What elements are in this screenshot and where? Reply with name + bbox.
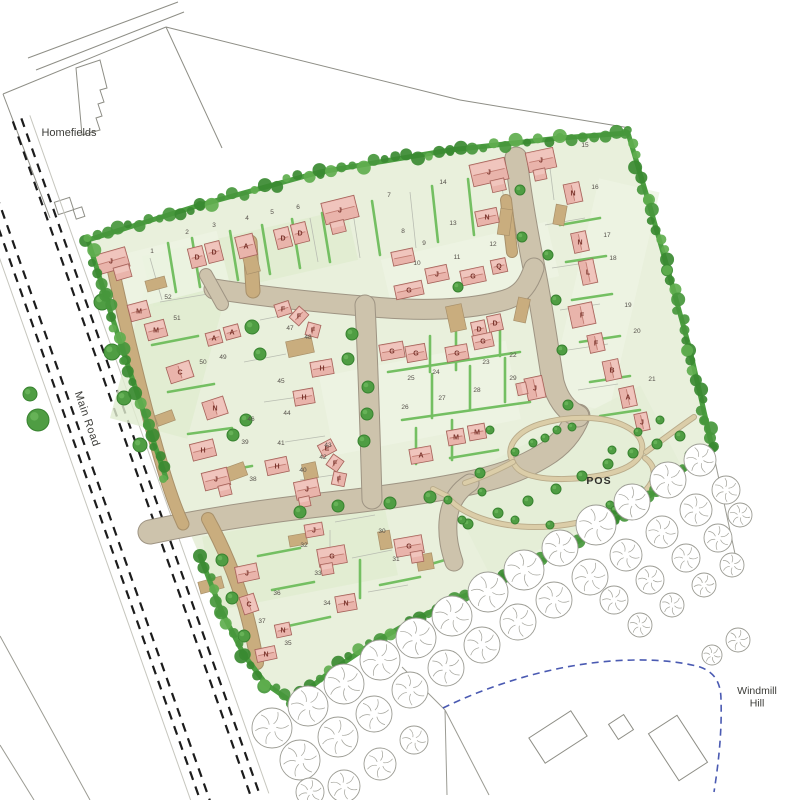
hedge-shrub — [637, 185, 647, 195]
tree — [453, 282, 463, 292]
tree-highlight — [479, 489, 482, 492]
hedge-shrub — [187, 207, 195, 215]
plot-number: 6 — [296, 204, 300, 211]
hedge-shrub — [247, 661, 255, 669]
tree — [511, 516, 519, 524]
tree-highlight — [629, 449, 633, 453]
tree-highlight — [135, 440, 140, 445]
plot-number: 9 — [422, 240, 426, 247]
plot-number: 23 — [482, 359, 490, 366]
site-plan-svg: JDDADDJJJNNGJGQDDNLFFBAJGGGGJMMAHHFFFEFF… — [0, 0, 800, 800]
tree-highlight — [609, 447, 612, 450]
woodland-tree-outline — [428, 650, 464, 686]
tree-highlight — [552, 485, 556, 489]
hedge-shrub — [194, 198, 206, 210]
plot-number: 3 — [212, 222, 216, 229]
windmill-hill — [443, 660, 721, 792]
parcel-boundary-line — [460, 100, 630, 128]
house-type-letter: F — [580, 312, 585, 319]
plot-number: 16 — [591, 184, 599, 191]
tree — [226, 592, 238, 604]
house-type-letter: M — [136, 308, 142, 315]
house-type-letter: A — [418, 452, 423, 459]
house-type-letter: G — [406, 287, 412, 294]
hedge-shrub — [134, 220, 146, 232]
tree-highlight — [512, 517, 515, 520]
hedge-shrub — [143, 214, 153, 224]
parcel-boundary-line — [36, 12, 184, 70]
house-type-letter: J — [640, 419, 644, 426]
tree — [424, 491, 436, 503]
tree-highlight — [30, 412, 38, 420]
plot-number: 50 — [199, 359, 207, 366]
woodland-tree-outline — [628, 613, 652, 637]
woodland-tree-outline — [704, 524, 732, 552]
house-type-letter: G — [389, 348, 395, 355]
hedge-shrub — [694, 383, 708, 397]
hedge-shrub — [234, 649, 248, 663]
tree — [515, 185, 525, 195]
hedge-shrub — [696, 406, 706, 416]
tree-highlight — [247, 322, 252, 327]
plot-number: 28 — [473, 387, 481, 394]
plot-number: 39 — [241, 439, 249, 446]
house-type-letter: J — [487, 169, 491, 176]
hedge-shrub — [344, 652, 352, 660]
hedge-shrub — [239, 191, 249, 201]
tree — [656, 416, 664, 424]
hedge-shrub — [544, 137, 554, 147]
tree — [523, 496, 533, 506]
tree-highlight — [554, 427, 557, 430]
house-type-letter: F — [333, 460, 338, 467]
plot-number: 15 — [581, 142, 589, 149]
plot-number: 34 — [323, 600, 331, 607]
plot-number: 43 — [324, 442, 332, 449]
plot-number: 46 — [247, 416, 255, 423]
woodland-tree-outline — [646, 516, 678, 548]
field-boundary-line — [0, 745, 34, 800]
tree — [332, 500, 344, 512]
house-type-letter: F — [337, 476, 342, 483]
hedge-shrub — [400, 148, 412, 160]
woodland-tree-outline — [684, 444, 716, 476]
house-type-letter: N — [280, 627, 285, 634]
woodland-tree-outline — [660, 593, 684, 617]
tree-highlight — [228, 594, 233, 599]
hedge-shrub — [390, 151, 400, 161]
plot-number: 33 — [314, 570, 322, 577]
road-surface — [365, 305, 372, 499]
hedge-shrub — [578, 132, 588, 142]
tree-highlight — [296, 508, 301, 513]
plot-number: 8 — [401, 228, 405, 235]
tree-highlight — [229, 431, 234, 436]
hedge-shrub — [325, 165, 337, 177]
plot-number: 20 — [633, 328, 641, 335]
woodland-tree-outline — [650, 462, 686, 498]
tree-highlight — [242, 416, 247, 421]
hedge-shrub — [208, 573, 216, 581]
plot-number: 35 — [284, 640, 292, 647]
tree-highlight — [459, 517, 462, 520]
hedge-shrub — [651, 225, 661, 235]
plot-number: 4 — [245, 215, 249, 222]
house-type-letter: M — [153, 327, 159, 334]
homefields-building-outline — [76, 60, 107, 135]
hedge-shrub — [111, 221, 125, 235]
hedge-shrub — [656, 234, 666, 244]
woodland-tree-outline — [536, 582, 572, 618]
tree — [563, 400, 573, 410]
hedge-shrub — [523, 139, 531, 147]
hedge-shrub — [316, 675, 324, 683]
house-type-letter: G — [406, 543, 412, 550]
woodland-tree-outline — [692, 573, 716, 597]
tree-highlight — [518, 233, 522, 237]
hedge-shrub — [159, 475, 167, 483]
house-type-letter: D — [297, 230, 302, 237]
woodland-tree-outline — [328, 770, 360, 800]
tree-highlight — [348, 330, 353, 335]
hedge-shrub — [106, 312, 116, 322]
tree-highlight — [653, 440, 657, 444]
hedge-shrub — [635, 172, 647, 184]
house-type-letter: Q — [496, 263, 502, 270]
tree — [384, 497, 396, 509]
plot-number: 49 — [219, 354, 227, 361]
hedge-shrub — [119, 357, 127, 365]
tree-highlight — [530, 440, 533, 443]
tree — [493, 508, 503, 518]
plot-number: 37 — [258, 618, 266, 625]
house-type-letter: D — [194, 254, 199, 261]
woodland-tree-outline — [356, 696, 392, 732]
woodland-tree-outline — [504, 550, 544, 590]
tree-highlight — [334, 502, 339, 507]
tree — [133, 438, 147, 452]
house-type-letter: L — [586, 269, 591, 276]
house-type-letter: D — [476, 326, 481, 333]
plot-number: 12 — [489, 241, 497, 248]
hedge-shrub — [553, 129, 567, 143]
hedge-shrub — [633, 151, 641, 159]
tree-highlight — [445, 497, 448, 500]
hedge-shrub — [156, 451, 166, 461]
house-type-letter: N — [212, 405, 217, 412]
hedge-shrub — [685, 355, 695, 365]
house-type-letter: J — [109, 258, 113, 265]
hedge-shrub — [479, 144, 487, 152]
plot-number: 27 — [438, 395, 446, 402]
hedge-shrub — [235, 640, 243, 648]
house-type-letter: C — [246, 601, 251, 608]
woodland-tree-outline — [280, 740, 320, 780]
tree-highlight — [542, 435, 545, 438]
tree — [358, 435, 370, 447]
woodland-tree-outline — [572, 559, 608, 595]
woodland-tree-outline — [318, 717, 358, 757]
tree — [23, 387, 37, 401]
hedge-shrub — [671, 292, 685, 306]
plot-number: 13 — [449, 220, 457, 227]
main-road-label: Main Road — [72, 390, 102, 448]
plot-number: 32 — [300, 542, 308, 549]
tree — [529, 439, 537, 447]
woodland-tree-outline — [636, 566, 664, 594]
tree — [603, 459, 613, 469]
hedge-shrub — [589, 132, 599, 142]
hedge-shrub — [258, 679, 270, 691]
hedge-shrub — [156, 215, 164, 223]
hedge-shrub — [96, 278, 108, 290]
hedge-shrub — [158, 461, 170, 473]
hedge-shrub — [114, 332, 126, 344]
plot-number: 52 — [164, 294, 172, 301]
plot-number: 36 — [273, 590, 281, 597]
windmill-hill-label: Windmill — [737, 685, 777, 697]
hedge-shrub — [251, 186, 259, 194]
plot-number: 2 — [185, 229, 189, 236]
plot-number: 42 — [319, 454, 327, 461]
tree — [486, 426, 494, 434]
hedge-shrub — [83, 234, 91, 242]
tree-highlight — [547, 522, 550, 525]
tree — [652, 439, 662, 449]
field-boundary-line — [445, 710, 489, 795]
tree-highlight — [494, 509, 498, 513]
tree-highlight — [106, 346, 112, 352]
tree — [634, 428, 642, 436]
field-boundary-line — [0, 636, 90, 800]
hedge-shrub — [128, 378, 136, 386]
hedge-shrub — [278, 688, 290, 700]
woodland-tree-outline — [392, 672, 428, 708]
woodland-tree-outline — [542, 530, 578, 566]
tree — [543, 250, 553, 260]
plot-number: 14 — [439, 179, 447, 186]
hedge-shrub — [116, 342, 130, 356]
plot-number: 48 — [304, 334, 312, 341]
tree-highlight — [635, 429, 638, 432]
site-plan-canvas: JDDADDJJJNNGJGQDDNLFFBAJGGGGJMMAHHFFFEFF… — [0, 0, 800, 800]
windmill-hill-label: Hill — [750, 698, 765, 710]
house-type-letter: M — [474, 429, 480, 436]
woodland-tree-outline — [464, 627, 500, 663]
tree-highlight — [564, 401, 568, 405]
hedge-shrub — [122, 365, 134, 377]
tree — [568, 423, 576, 431]
hedge-shrub — [87, 243, 101, 257]
house-type-letter: N — [343, 600, 348, 607]
house-type-letter: A — [243, 243, 248, 250]
tree — [551, 484, 561, 494]
hedge-shrub — [681, 345, 693, 357]
tree-highlight — [578, 472, 582, 476]
house-type-letter: J — [312, 527, 316, 534]
woodland-tree-outline — [726, 628, 750, 652]
plot-number: 31 — [392, 556, 400, 563]
plot-number: 17 — [603, 232, 611, 239]
house-type-letter: H — [319, 365, 324, 372]
house-type-letter: A — [625, 394, 630, 401]
plot-number: 29 — [509, 375, 517, 382]
homefields-outbuilding — [73, 207, 85, 219]
house-type-letter: D — [211, 249, 216, 256]
plot-number: 25 — [407, 375, 415, 382]
hedge-shrub — [88, 259, 96, 267]
house-type-letter: G — [454, 350, 460, 357]
tree — [362, 381, 374, 393]
plot-number: 7 — [387, 192, 391, 199]
house-type-letter: J — [245, 570, 249, 577]
tree — [517, 232, 527, 242]
plot-number: 45 — [277, 378, 285, 385]
woodland-tree-outline — [360, 640, 400, 680]
woodland-tree-outline — [400, 726, 428, 754]
hedge-shrub — [533, 133, 543, 143]
tree — [551, 295, 561, 305]
hedge-shrub — [124, 220, 132, 228]
hedge-shrub — [665, 275, 675, 285]
house-type-letter: J — [305, 486, 309, 493]
woodland-tree-outline — [610, 539, 642, 571]
woodland-tree-outline — [500, 604, 536, 640]
hedge-shrub — [680, 314, 690, 324]
house-type-letter: F — [297, 313, 302, 320]
hedge-shrub — [282, 174, 290, 182]
tree — [478, 488, 486, 496]
house-type-letter: J — [435, 271, 439, 278]
tree-highlight — [360, 437, 365, 442]
tree-highlight — [604, 460, 608, 464]
house-type-letter: C — [177, 369, 182, 376]
house-type-letter: N — [577, 239, 582, 246]
house-type-letter: A — [229, 329, 234, 336]
hedge-shrub — [699, 396, 707, 404]
tree-highlight — [476, 469, 480, 473]
house-type-letter: N — [484, 214, 489, 221]
hedge-shrub — [381, 155, 389, 163]
hedge-shrub — [103, 290, 111, 298]
hedge-shrub — [141, 409, 151, 419]
tree — [444, 496, 452, 504]
hedge-shrub — [509, 133, 523, 147]
homefields-label: Homefields — [41, 127, 97, 139]
woodland-tree-outline — [432, 596, 472, 636]
plot-number: 19 — [624, 302, 632, 309]
hedge-shrub — [252, 671, 262, 681]
house-type-letter: J — [338, 207, 342, 214]
house-type-letter: H — [274, 463, 279, 470]
house-type-letter: H — [200, 447, 205, 454]
house-type-letter: G — [470, 273, 476, 280]
tree — [254, 348, 266, 360]
hedge-shrub — [175, 208, 187, 220]
field-boundary-line — [445, 710, 447, 795]
hedge-shrub — [197, 562, 209, 574]
parcel-boundary-line — [3, 94, 50, 218]
house-type-letter: G — [480, 338, 486, 345]
hedge-shrub — [229, 628, 239, 638]
hedge-shrub — [645, 203, 659, 217]
hedge-shrub — [489, 138, 499, 148]
plot-number: 18 — [609, 255, 617, 262]
tree-highlight — [569, 424, 572, 427]
hedge-shrub — [348, 162, 356, 170]
hedge-shrub — [210, 596, 222, 608]
house-type-letter: F — [594, 340, 599, 347]
plot-number: 26 — [401, 404, 409, 411]
hedge-shrub — [193, 549, 207, 563]
hedge-shrub — [272, 684, 280, 692]
house-type-letter: J — [214, 476, 218, 483]
house-type-letter: F — [281, 306, 286, 313]
woodland-tree-outline — [396, 618, 436, 658]
tree-highlight — [256, 350, 261, 355]
plot-number: 11 — [454, 254, 461, 261]
house-type-letter: G — [329, 553, 335, 560]
plot-number: 24 — [432, 369, 440, 376]
house-type-letter: G — [413, 350, 419, 357]
hedge-shrub — [226, 187, 238, 199]
tree — [227, 429, 239, 441]
tree — [511, 448, 519, 456]
house-type-letter: J — [533, 385, 537, 392]
hedge-shrub — [149, 443, 157, 451]
hedge-shrub — [336, 162, 346, 172]
hedge-shrub — [411, 151, 425, 165]
tree — [553, 426, 561, 434]
woodland-tree-outline — [252, 708, 292, 748]
hedge-shrub — [292, 170, 302, 180]
woodland-tree-outline — [600, 586, 628, 614]
tree — [608, 446, 616, 454]
house-type-letter: N — [263, 651, 268, 658]
hedge-shrub — [258, 178, 272, 192]
plot-number: 21 — [648, 376, 656, 383]
hedge-shrub — [205, 198, 219, 212]
hedge-shrub — [446, 148, 454, 156]
tree-highlight — [544, 251, 548, 255]
tree-highlight — [119, 393, 124, 398]
hedge-shrub — [109, 324, 117, 332]
windmill-hill-building-outline — [609, 715, 634, 740]
woodland-tree-outline — [672, 544, 700, 572]
hedge-shrub — [662, 265, 672, 275]
tree-highlight — [218, 556, 223, 561]
hedge-shrub — [687, 366, 697, 376]
hedge-shrub — [128, 386, 142, 400]
woodland-tree-outline — [288, 686, 328, 726]
hedge-shrub — [425, 153, 433, 161]
hedge-shrub — [672, 307, 680, 315]
plot-number: 40 — [299, 467, 307, 474]
tree — [27, 409, 49, 431]
parcel-boundary-line — [166, 27, 460, 100]
plot-number: 44 — [283, 410, 291, 417]
hedge-shrub — [628, 139, 638, 149]
plot-number: 30 — [378, 528, 386, 535]
house-type-letter: H — [301, 394, 306, 401]
plot-number: 10 — [413, 260, 421, 267]
tree — [216, 554, 228, 566]
hedge-shrub — [680, 325, 690, 335]
tree — [361, 408, 373, 420]
tree-highlight — [657, 417, 660, 420]
tree — [346, 328, 358, 340]
tree-highlight — [516, 186, 520, 190]
